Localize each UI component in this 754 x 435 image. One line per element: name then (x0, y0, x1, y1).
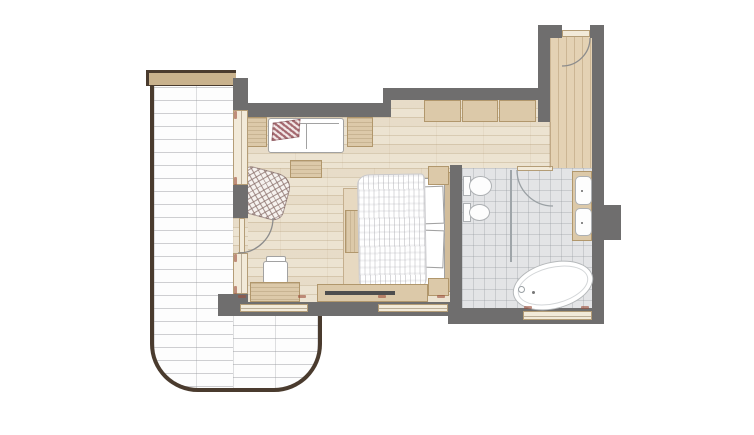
floor-plan (0, 0, 754, 435)
dimension-tick (238, 295, 246, 298)
dimension-tick (298, 295, 306, 298)
dimension-tick (524, 306, 532, 309)
dimension-ticks-layer (0, 0, 754, 435)
dimension-tick (437, 295, 445, 298)
dimension-tick (234, 286, 237, 294)
dimension-tick (234, 111, 237, 119)
dimension-tick (234, 254, 237, 262)
dimension-tick (234, 177, 237, 185)
dimension-tick (581, 306, 589, 309)
dimension-tick (378, 295, 386, 298)
